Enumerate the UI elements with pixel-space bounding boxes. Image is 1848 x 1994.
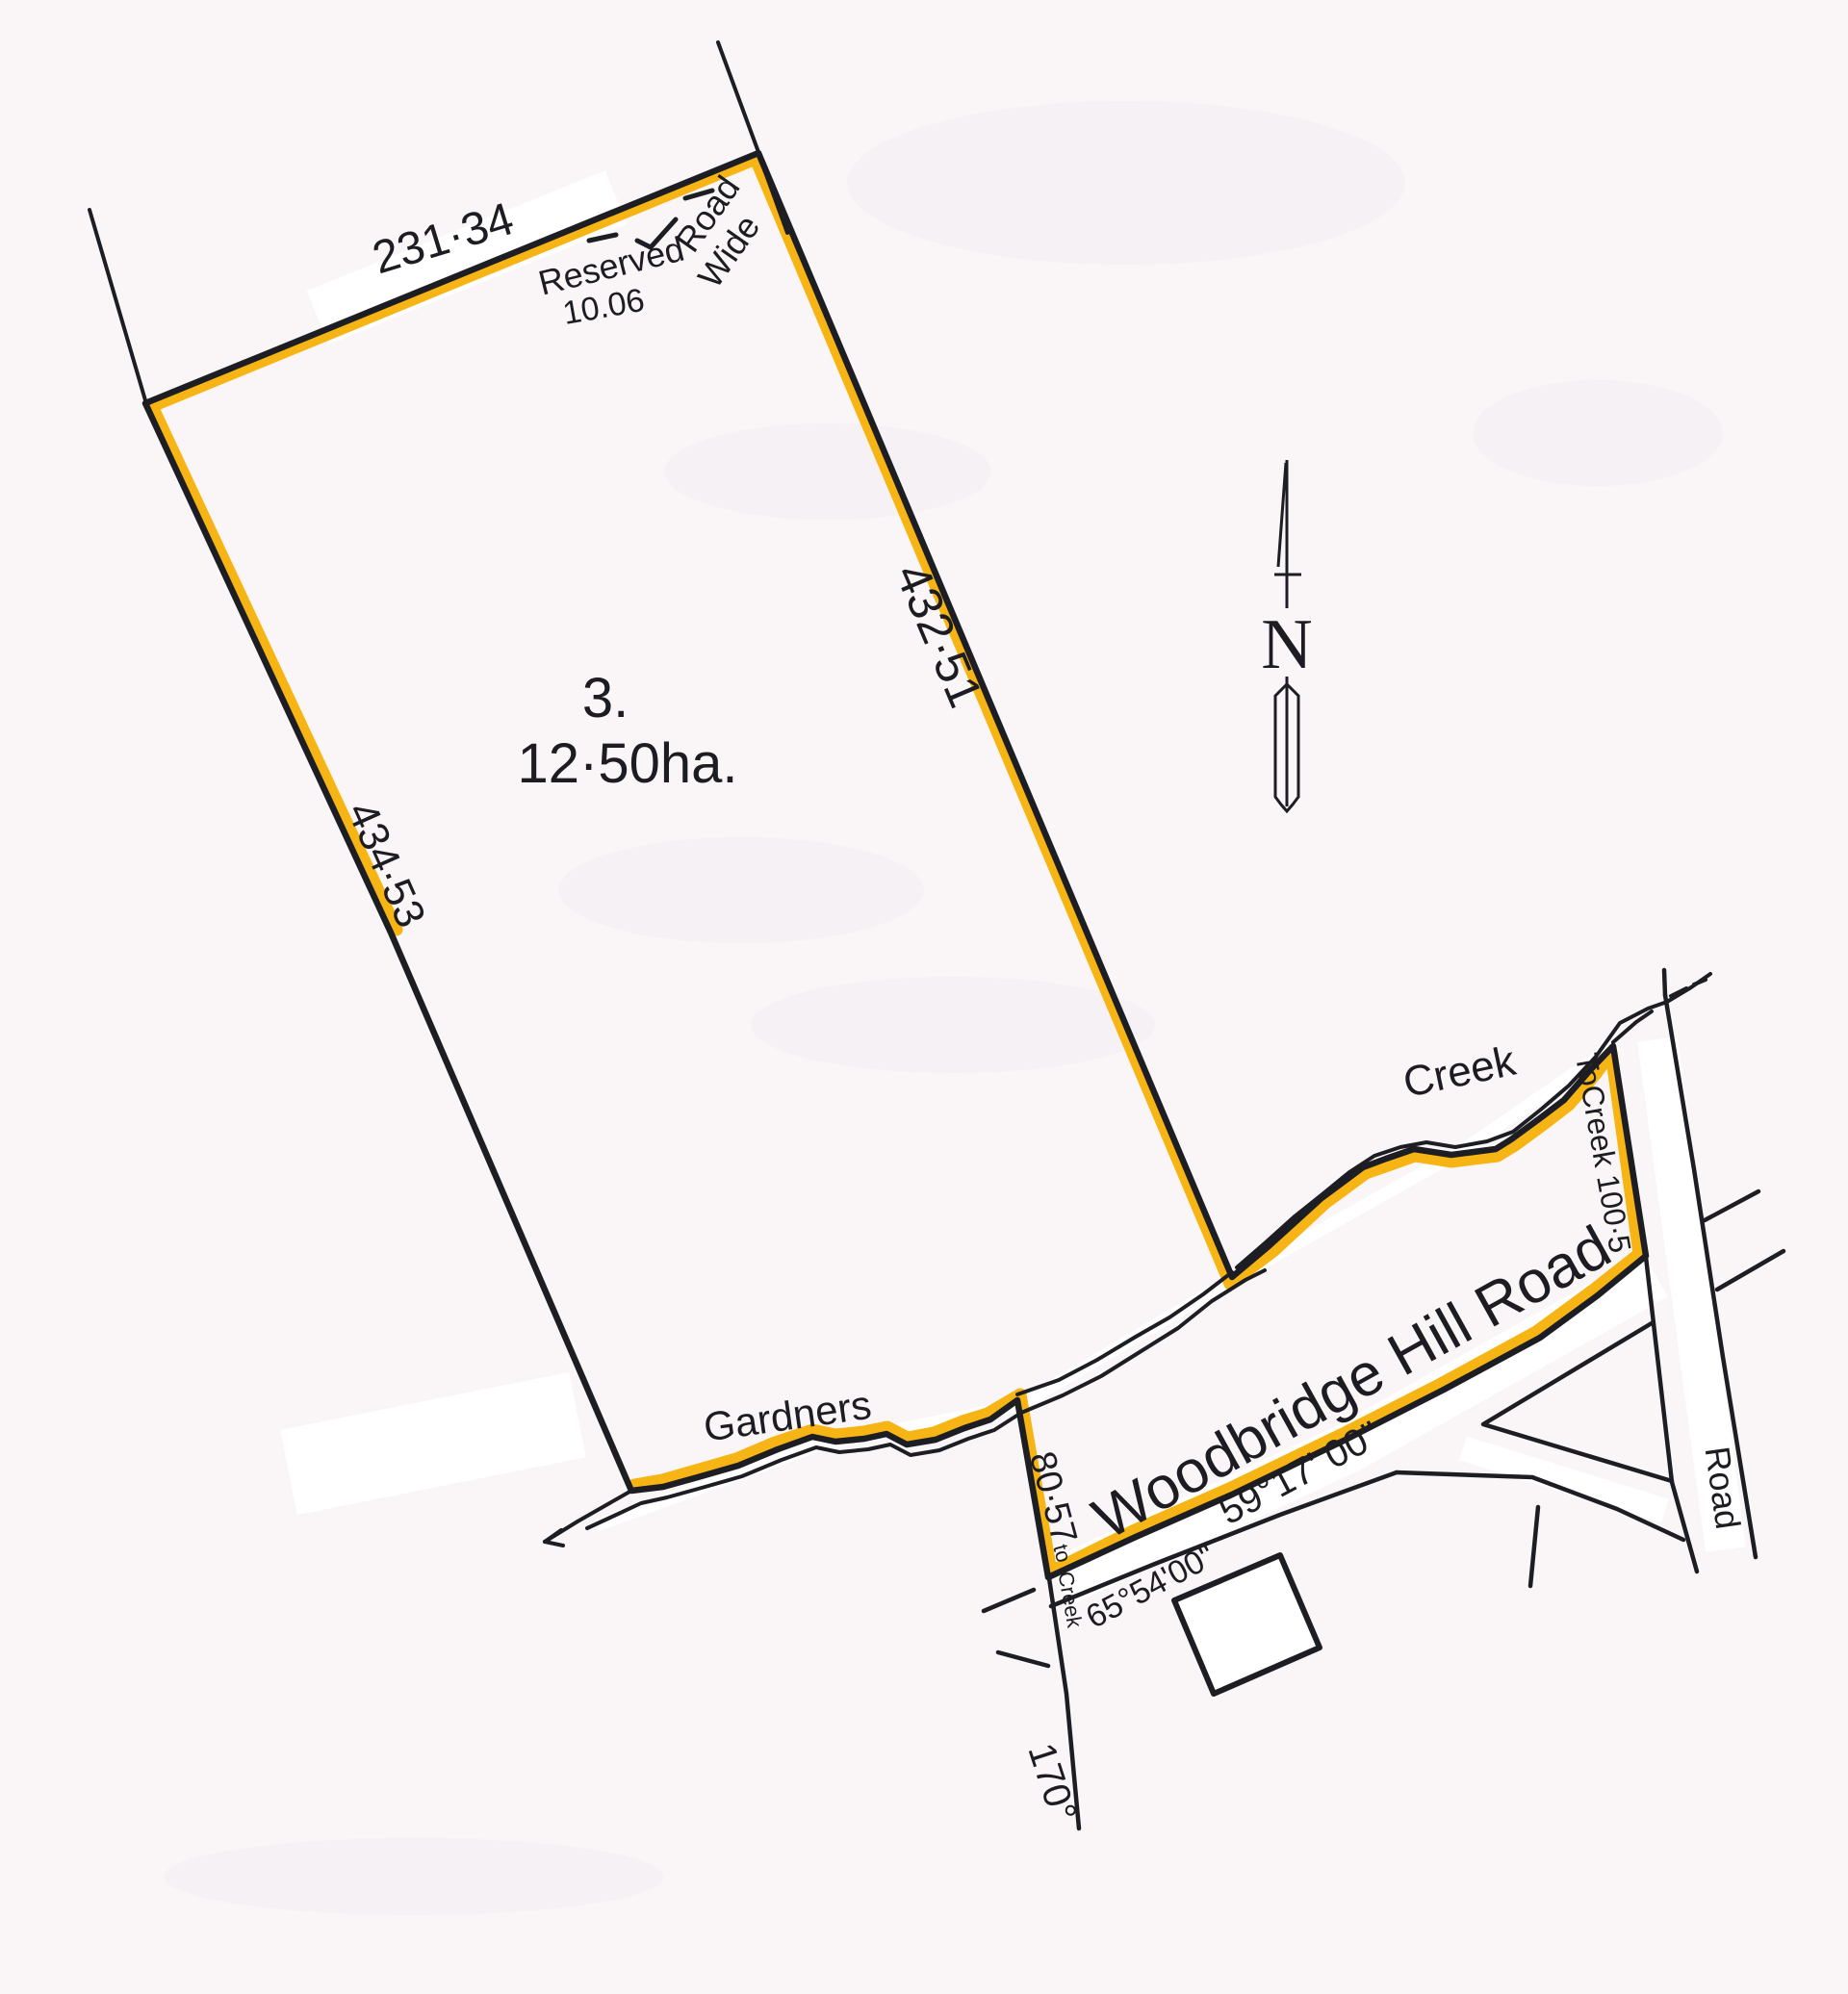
svg-text:12·50ha.: 12·50ha.: [518, 732, 738, 795]
svg-text:N: N: [1261, 605, 1312, 684]
svg-text:3.: 3.: [582, 667, 629, 729]
